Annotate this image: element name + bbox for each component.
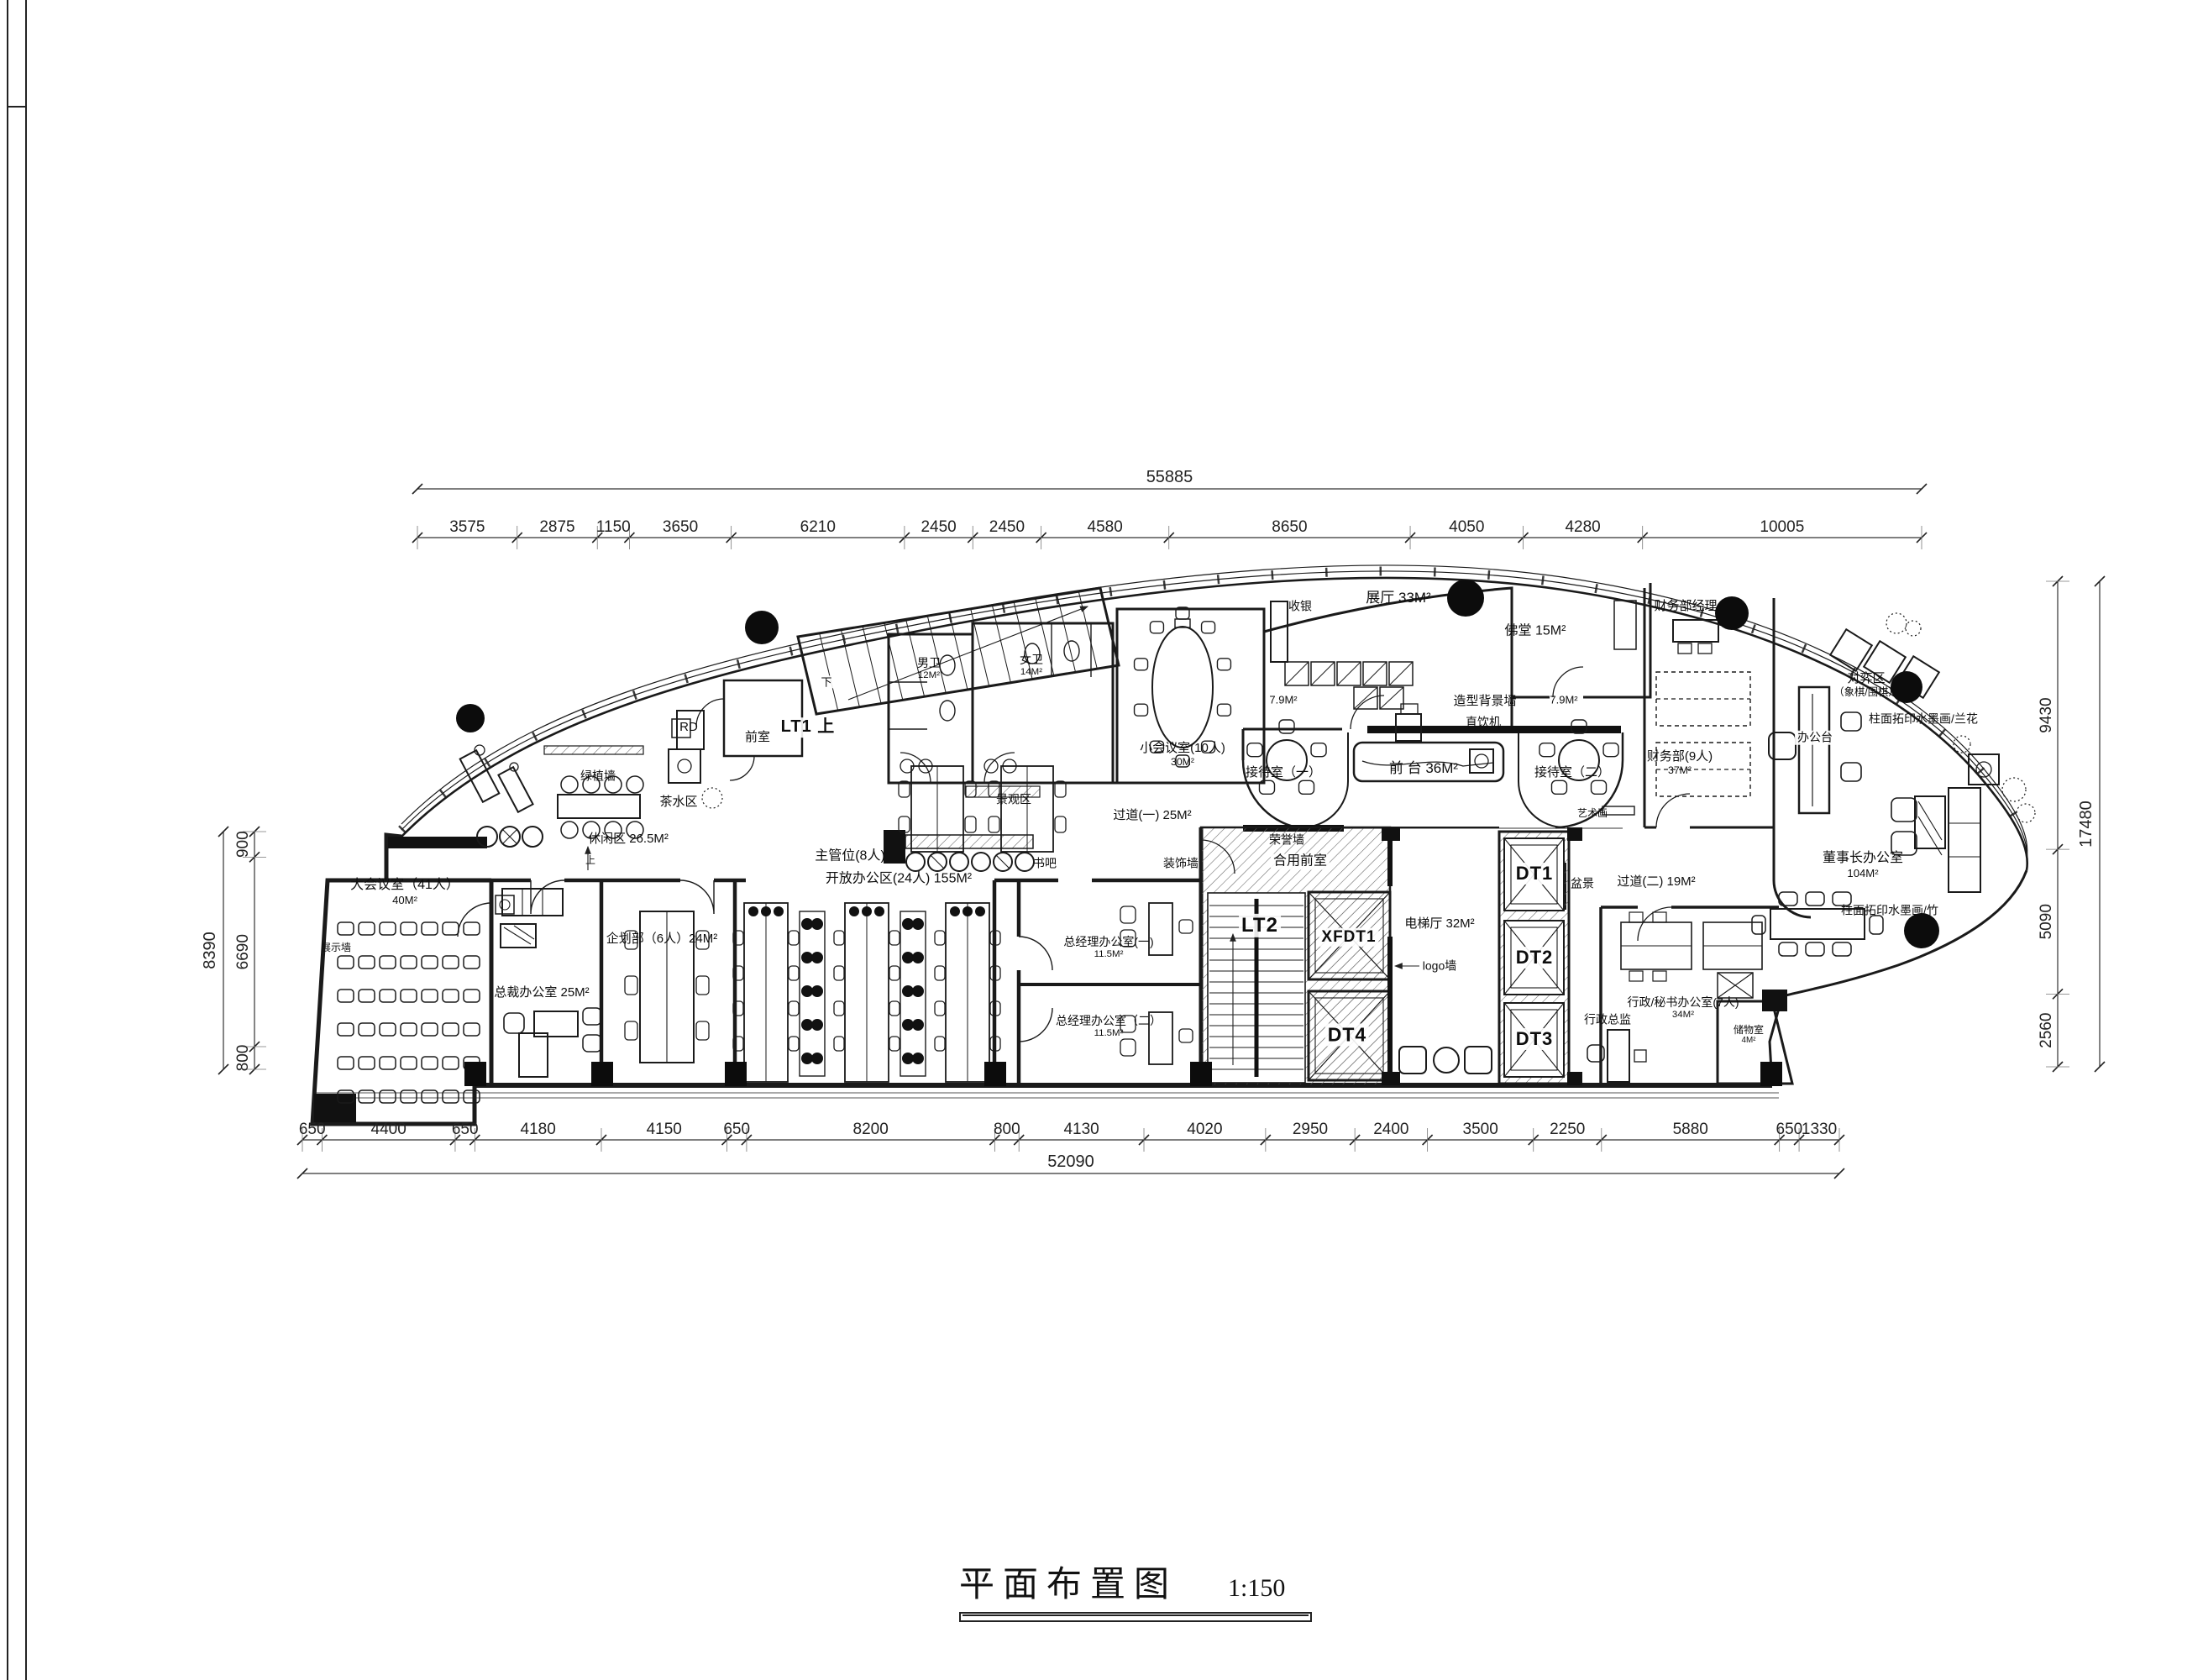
svg-text:17480: 17480 [2077,801,2095,848]
svg-text:650: 650 [1776,1121,1803,1138]
corner-column [314,1094,356,1122]
drawing-title: 平面布置图 [959,1556,1178,1607]
title-block: 平面布置图 1:150 [959,1556,1312,1622]
svg-text:52090: 52090 [1047,1152,1094,1171]
book-bar [884,786,1040,871]
svg-text:2450: 2450 [921,518,956,536]
svg-text:650: 650 [299,1121,326,1138]
svg-text:2400: 2400 [1373,1121,1408,1138]
chairman-meeting-table [1770,909,1865,939]
svg-text:3500: 3500 [1463,1121,1498,1138]
svg-text:2950: 2950 [1293,1121,1328,1138]
core-block [1201,827,1582,1085]
svg-text:650: 650 [723,1121,750,1138]
svg-text:2560: 2560 [2038,1013,2055,1048]
building-shell [312,565,2027,1124]
svg-text:6210: 6210 [800,518,836,536]
svg-text:4150: 4150 [647,1121,682,1138]
leisure-zone [460,719,722,870]
svg-text:800: 800 [234,1045,252,1072]
admin-office [1587,907,1792,1085]
chairman-desk [1799,687,1829,813]
leisure-table [558,795,640,818]
svg-text:10005: 10005 [1760,518,1804,536]
cashier-counter [1271,601,1288,662]
finance-walls [1644,588,1774,827]
interior-walls [458,827,1201,1085]
svg-text:8200: 8200 [853,1121,889,1138]
tea-counter [669,749,700,783]
director-desk [1608,1030,1629,1082]
exercise-bike [498,767,532,812]
svg-text:650: 650 [452,1121,479,1138]
svg-text:8650: 8650 [1272,518,1307,536]
drawing-scale: 1:150 [1228,1574,1285,1603]
svg-text:4020: 4020 [1187,1121,1222,1138]
svg-text:4280: 4280 [1565,518,1600,536]
svg-text:2250: 2250 [1550,1121,1585,1138]
svg-text:4050: 4050 [1449,518,1484,536]
svg-text:4180: 4180 [521,1121,556,1138]
svg-text:1150: 1150 [596,518,631,536]
chairman-office [1752,613,2035,956]
svg-text:9430: 9430 [2038,697,2055,732]
display-wall [388,837,487,848]
svg-text:4580: 4580 [1088,518,1123,536]
svg-text:4130: 4130 [1063,1121,1099,1138]
svg-text:8390: 8390 [201,932,219,969]
art-painting [1602,806,1634,815]
svg-text:2450: 2450 [989,518,1025,536]
floor-plan-canvas: 3575287511503650621024502450458086504050… [0,0,2203,1680]
svg-text:3575: 3575 [449,518,485,536]
svg-text:5880: 5880 [1673,1121,1708,1138]
svg-text:3650: 3650 [663,518,698,536]
svg-text:5090: 5090 [2038,904,2055,939]
title-underline [959,1612,1312,1622]
svg-text:55885: 55885 [1146,468,1193,486]
svg-text:1330: 1330 [1802,1121,1837,1138]
plan-drawing: 3575287511503650621024502450458086504050… [0,0,2203,1680]
dimension-lines: 3575287511503650621024502450458086504050… [201,468,2105,1179]
svg-text:6690: 6690 [234,934,252,969]
svg-text:800: 800 [994,1121,1020,1138]
sheet-frame [8,0,26,1680]
svg-text:900: 900 [234,831,252,858]
backdrop-wall [1367,726,1621,733]
svg-text:2875: 2875 [539,518,574,536]
svg-text:4400: 4400 [371,1121,407,1138]
ceo-office [496,889,694,1077]
